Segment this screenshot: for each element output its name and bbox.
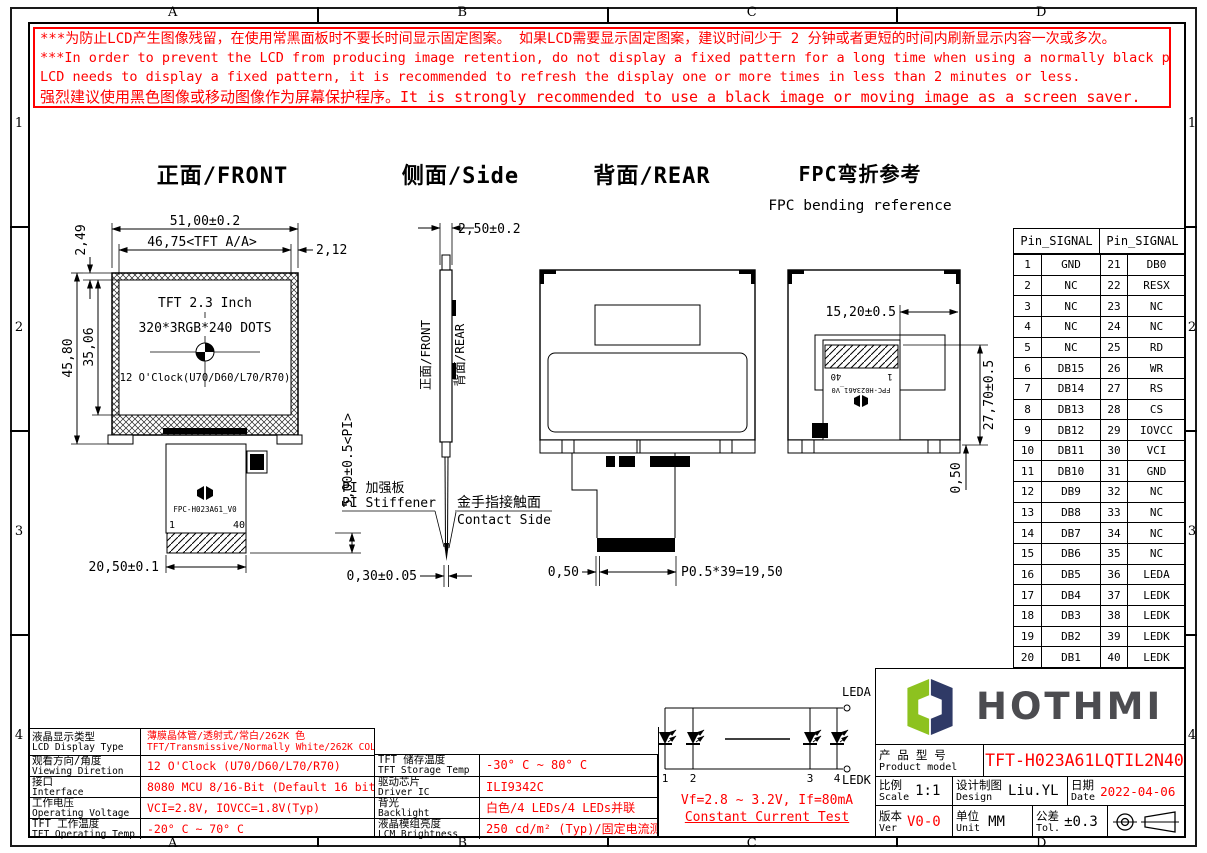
bend-gold-fingers <box>825 345 898 368</box>
fpc-view-subtitle: FPC bending reference <box>755 198 965 214</box>
front-fpc-pin1: 1 <box>169 520 175 531</box>
pin-number: 16 <box>1014 564 1041 585</box>
spec-label-cn: 驱动芯片 <box>378 777 479 788</box>
spec-label-en: Interface <box>32 788 140 798</box>
pin-signal: NC <box>1041 337 1100 358</box>
pin-number: 40 <box>1100 646 1127 667</box>
spec-value: 薄膜晶体管/透射式/常白/262K 色TFT/Transmissive/Norm… <box>141 729 374 755</box>
spec-label-en: Operating Voltage <box>32 809 140 819</box>
spec-value-line: -30° C ~ 80° C <box>486 759 657 772</box>
warning-line: ***In order to prevent the LCD from prod… <box>40 49 1164 68</box>
pin-number: 9 <box>1014 419 1041 440</box>
front-panel-size-label: TFT 2.3 Inch <box>158 296 252 311</box>
pin-number: 35 <box>1100 543 1127 564</box>
pin-number: 17 <box>1014 584 1041 605</box>
frame-zone-letter-bottom: C <box>742 836 762 851</box>
spec-value-line: ILI9342C <box>486 781 657 794</box>
pin-number: 8 <box>1014 399 1041 420</box>
frame-zone-number-left: 3 <box>11 524 27 539</box>
date-value: 2022-04-06 <box>1100 784 1175 799</box>
zone-tick <box>607 7 609 22</box>
hothmi-logo-icon <box>898 679 962 735</box>
pin-signal: WR <box>1127 357 1185 378</box>
zone-tick <box>1186 634 1197 636</box>
bend-pin40-label: 40 <box>831 371 842 381</box>
rear-dim-pitch: P0.5*39=19,50 <box>681 565 783 580</box>
side-profile-body <box>440 270 452 442</box>
side-component-bump <box>452 300 456 316</box>
pin-number: 10 <box>1014 440 1041 461</box>
scale-label-en: Scale <box>879 792 909 803</box>
pin-number: 13 <box>1014 502 1041 523</box>
spec-row: 工作电压Operating VoltageVCI=2.8V, IOVCC=1.8… <box>29 797 374 818</box>
pin-signal: CS <box>1127 399 1185 420</box>
spec-label-en: Driver IC <box>378 788 479 798</box>
pin-number: 33 <box>1100 502 1127 523</box>
pin-signal: DB13 <box>1041 399 1100 420</box>
pin-number: 1 <box>1014 254 1041 275</box>
pin-signal: DB3 <box>1041 605 1100 626</box>
frame-zone-letter-top: B <box>452 5 472 20</box>
pin-number: 2 <box>1014 275 1041 296</box>
front-fpc-part-label: FPC-H023A61_V0 <box>173 505 237 514</box>
pin-signal: LEDK <box>1127 646 1185 667</box>
pin-signal: IOVCC <box>1127 419 1185 440</box>
zone-tick <box>896 838 898 847</box>
spec-label: 工作电压Operating Voltage <box>29 798 141 818</box>
spec-value-line: 薄膜晶体管/透射式/常白/262K 色 <box>147 731 374 742</box>
warning-line: 强烈建议使用黑色图像或移动图像作为屏幕保护程序。It is strongly r… <box>40 87 1164 108</box>
date-label-en: Date <box>1071 792 1095 803</box>
spec-row: TFT 储存温度TFT Storage Temp-30° C ~ 80° C <box>375 755 657 776</box>
product-model-label-cn: 产 品 型 号 <box>879 749 957 762</box>
pin-number: 12 <box>1014 481 1041 502</box>
spec-value-line: VCI=2.8V, IOVCC=1.8V(Typ) <box>147 802 374 815</box>
frame-zone-number-right: 3 <box>1186 524 1198 539</box>
rear-fpc-component <box>619 456 635 467</box>
front-dim-top-margin: 2,49 <box>74 224 89 255</box>
pin-number: 32 <box>1100 481 1127 502</box>
pin-signal: RS <box>1127 378 1185 399</box>
ver-label-cn: 版本 <box>879 810 902 823</box>
spec-value: ILI9342C <box>480 777 657 797</box>
warning-line: ***为防止LCD产生图像残留，在使用常黑面板时不要长时间显示固定图案。 如果L… <box>40 30 1164 49</box>
spec-label: TFT 工作温度TFT Operating Temp <box>29 819 141 839</box>
spec-row: 接口Interface8080 MCU 8/16-Bit (Default 16… <box>29 776 374 797</box>
pin-signal: DB15 <box>1041 357 1100 378</box>
unit-label-en: Unit <box>956 823 980 834</box>
frame-zone-letter-top: C <box>742 5 762 20</box>
pin-signal: LEDK <box>1127 626 1185 647</box>
spec-row: 背光Backlight白色/4 LEDs/4 LEDs并联 <box>375 797 657 818</box>
spec-value-line: 12 O'Clock (U70/D60/L70/R70) <box>147 760 374 773</box>
front-dim-active-width: 46,75<TFT A/A> <box>147 235 257 250</box>
bend-dim-gap: 0,50 <box>949 462 964 493</box>
pin-table-header-left: Pin_SIGNAL <box>1014 229 1100 253</box>
spec-value-line: -20° C ~ 70° C <box>147 823 374 836</box>
spec-label-en: Viewing Diretion <box>32 767 140 777</box>
side-dim-thickness: 2,50±0.2 <box>458 222 521 237</box>
pin-number: 38 <box>1100 605 1127 626</box>
pin-signal: DB5 <box>1041 564 1100 585</box>
spec-value-line: 白色/4 LEDs/4 LEDs并联 <box>486 802 657 815</box>
spec-value: -20° C ~ 70° C <box>141 819 374 839</box>
pin-number: 4 <box>1014 316 1041 337</box>
zone-tick <box>1186 226 1197 228</box>
spec-label-cn: TFT 工作温度 <box>32 819 140 830</box>
pin-number: 14 <box>1014 522 1041 543</box>
spec-value-line: 250 cd/m² (Typ)/固定电流测试 <box>486 823 657 836</box>
pin-signal: DB0 <box>1127 254 1185 275</box>
pin-number: 21 <box>1100 254 1127 275</box>
pin-number: 25 <box>1100 337 1127 358</box>
warning-line: LCD needs to display a fixed pattern, it… <box>40 68 1164 87</box>
spec-row: 液晶模组亮度LCM Brightness250 cd/m² (Typ)/固定电流… <box>375 818 657 839</box>
pin-number: 31 <box>1100 460 1127 481</box>
pin-number: 20 <box>1014 646 1041 667</box>
bend-fpc-part-label: FPC-H023A61_V0 <box>831 386 890 394</box>
pin-signal: DB10 <box>1041 460 1100 481</box>
pin-number: 29 <box>1100 419 1127 440</box>
rear-view-title: 背面/REAR <box>572 158 732 190</box>
spec-row: 驱动芯片Driver ICILI9342C <box>375 776 657 797</box>
pin-number: 5 <box>1014 337 1041 358</box>
pin-signal: DB1 <box>1041 646 1100 667</box>
pin-signal: DB2 <box>1041 626 1100 647</box>
spec-value-line: 8080 MCU 8/16-Bit (Default 16 bit) <box>147 781 374 794</box>
pin-number: 37 <box>1100 584 1127 605</box>
leda-terminal <box>844 705 850 711</box>
rear-gold-fingers <box>597 538 675 552</box>
front-view-drawing: TFT 2.3 Inch 320*3RGB*240 DOTS 12 O'Cloc… <box>45 215 380 590</box>
zone-tick <box>896 7 898 22</box>
frame-zone-number-left: 1 <box>11 116 27 131</box>
spec-row: TFT 工作温度TFT Operating Temp-20° C ~ 70° C <box>29 818 374 839</box>
datasheet-drawing-page: AABBCCDD11223344 ***为防止LCD产生图像残留，在使用常黑面板… <box>0 0 1207 853</box>
spec-label: 观看方向/角度Viewing Diretion <box>29 756 141 776</box>
pin-number: 34 <box>1100 522 1127 543</box>
pin-number: 23 <box>1100 295 1127 316</box>
rear-fpc-component <box>606 456 615 467</box>
bend-pin1-label: 1 <box>887 371 892 381</box>
bend-dim-width: 15,20±0.5 <box>826 305 896 320</box>
unit-label-cn: 单位 <box>956 810 980 823</box>
pin-signal: GND <box>1041 254 1100 275</box>
zone-tick <box>1186 430 1197 432</box>
pin-signal: GND <box>1127 460 1185 481</box>
pin-signal: LEDK <box>1127 584 1185 605</box>
pin-signal: DB9 <box>1041 481 1100 502</box>
pin-signal: NC <box>1127 502 1185 523</box>
spec-label: 液晶模组亮度LCM Brightness <box>375 819 480 839</box>
logo-cell: HOTHMI <box>876 669 1185 745</box>
rear-fpc-left-edge <box>572 453 597 538</box>
pin-table-header: Pin_SIGNAL Pin_SIGNAL <box>1014 229 1185 254</box>
spec-label: 背光Backlight <box>375 798 480 818</box>
pin-signal: RD <box>1127 337 1185 358</box>
spec-label-cn: 背光 <box>378 798 479 809</box>
spec-value: -30° C ~ 80° C <box>480 755 657 776</box>
rear-bottom-strip <box>540 440 755 453</box>
front-bezel-slot <box>163 428 247 434</box>
spec-label-en: Backlight <box>378 809 479 819</box>
constant-current-test-text: Constant Current Test <box>659 810 875 825</box>
logo-wordmark: HOTHMI <box>976 685 1163 728</box>
pin-number: 7 <box>1014 378 1041 399</box>
spec-label-cn: 观看方向/角度 <box>32 756 140 767</box>
rear-module-outline <box>540 270 755 440</box>
tol-label-cn: 公差 <box>1036 810 1060 823</box>
front-fpc-connector <box>250 454 264 470</box>
contact-side-label-cn: 金手指接触面 <box>457 494 541 511</box>
front-dim-fpc-width: 20,50±0.1 <box>89 560 159 575</box>
pin-number: 30 <box>1100 440 1127 461</box>
pin-table-rows: 1GND21DB02NC22RESX3NC23NC4NC24NC5NC25RD6… <box>1014 254 1185 667</box>
pin-signal: DB6 <box>1041 543 1100 564</box>
pin-table-header-right: Pin_SIGNAL <box>1100 229 1185 253</box>
pin-signal: RESX <box>1127 275 1185 296</box>
spec-label-en: TFT Operating Temp <box>32 830 140 840</box>
side-view-title: 侧面/Side <box>383 158 538 190</box>
design-label-cn: 设计制图 <box>956 779 1002 792</box>
frame-zone-letter-top: D <box>1031 5 1051 20</box>
rear-label-area <box>595 305 700 345</box>
side-bottom-cap <box>442 442 450 457</box>
title-block: HOTHMI 产 品 型 号 Product model TFT-H023A61… <box>875 668 1186 838</box>
spec-label: TFT 储存温度TFT Storage Temp <box>375 755 480 776</box>
pin-signal: DB11 <box>1041 440 1100 461</box>
pin-signal: NC <box>1041 295 1100 316</box>
pin-number: 24 <box>1100 316 1127 337</box>
product-model-label-en: Product model <box>879 762 957 773</box>
pin-number: 18 <box>1014 605 1041 626</box>
pin-signal: NC <box>1041 316 1100 337</box>
zone-tick <box>10 226 28 228</box>
spec-value: 8080 MCU 8/16-Bit (Default 16 bit) <box>141 777 374 797</box>
unit-value: MM <box>988 814 1005 830</box>
pin-signal: DB12 <box>1041 419 1100 440</box>
zone-tick <box>10 634 28 636</box>
rear-view-drawing: 0,50 P0.5*39=19,50 <box>530 250 815 590</box>
pi-stiffener-label-en: PI Stiffener <box>342 496 436 511</box>
pin-signal: DB7 <box>1041 522 1100 543</box>
pin-number: 26 <box>1100 357 1127 378</box>
front-dim-width: 51,00±0.2 <box>170 214 240 229</box>
ver-value: V0-0 <box>907 814 941 830</box>
pin-signal: NC <box>1127 295 1185 316</box>
front-panel-clock-label: 12 O'Clock(U70/D60/L70/R70) <box>120 372 291 384</box>
pin-signal: NC <box>1127 543 1185 564</box>
ver-label-en: Ver <box>879 823 902 834</box>
vf-spec-text: Vf=2.8 ~ 3.2V, If=80mA <box>659 793 875 808</box>
pin-number: 15 <box>1014 543 1041 564</box>
bend-dim-height: 27,70±0.5 <box>982 360 997 430</box>
scale-design-date-row: 比例 Scale 1:1 设计制图 Design Liu.YL 日期 Date … <box>876 777 1185 806</box>
leda-label: LEDA <box>842 685 872 699</box>
warning-box: ***为防止LCD产生图像残留，在使用常黑面板时不要长时间显示固定图案。 如果L… <box>33 27 1171 108</box>
zone-tick <box>607 838 609 847</box>
spec-label-en: LCM Brightness <box>378 830 479 840</box>
pin-number: 11 <box>1014 460 1041 481</box>
pin-signal: NC <box>1127 316 1185 337</box>
pin-signal: LEDK <box>1127 605 1185 626</box>
spec-value-line: TFT/Transmissive/Normally White/262K COL… <box>147 742 374 753</box>
pin-signal: VCI <box>1127 440 1185 461</box>
pin-number: 19 <box>1014 626 1041 647</box>
spec-value: VCI=2.8V, IOVCC=1.8V(Typ) <box>141 798 374 818</box>
ver-unit-tol-row: 版本 Ver V0-0 单位 Unit MM 公差 Tol. ±0.3 <box>876 806 1185 837</box>
front-dim-height: 45,80 <box>61 338 76 377</box>
frame-zone-number-right: 4 <box>1186 728 1198 743</box>
spec-label: 液晶显示类型LCD Display Type <box>29 729 141 755</box>
spec-value: 白色/4 LEDs/4 LEDs并联 <box>480 798 657 818</box>
fpc-bending-drawing: 40 1 FPC-H023A61_V0 15,20±0.5 27,70±0.5 … <box>780 250 1010 500</box>
front-view-title: 正面/FRONT <box>115 158 330 190</box>
spec-label: 接口Interface <box>29 777 141 797</box>
scale-value: 1:1 <box>915 783 940 799</box>
product-model-value: TFT-H023A61LQTIL2N40 <box>985 751 1184 770</box>
pin-number: 6 <box>1014 357 1041 378</box>
scale-label-cn: 比例 <box>879 779 909 792</box>
zone-tick <box>10 430 28 432</box>
fpc-view-title: FPC弯折参考 <box>765 158 955 187</box>
lcd-spec-table-left: 液晶显示类型LCD Display Type薄膜晶体管/透射式/常白/262K … <box>28 728 375 838</box>
pin-signal: DB8 <box>1041 502 1100 523</box>
product-model-row: 产 品 型 号 Product model TFT-H023A61LQTIL2N… <box>876 745 1185 777</box>
spec-label-cn: 液晶模组亮度 <box>378 819 479 830</box>
frame-zone-letter-top: A <box>163 5 183 20</box>
projection-symbol-icon <box>1111 808 1183 836</box>
side-top-cap <box>442 255 450 270</box>
front-fpc-pin40: 40 <box>233 520 245 531</box>
rear-fpc-component <box>650 456 690 467</box>
spec-value: 12 O'Clock (U70/D60/L70/R70) <box>141 756 374 776</box>
design-value: Liu.YL <box>1008 783 1059 799</box>
side-rear-face-label: 背面/REAR <box>452 323 467 386</box>
pin-number: 36 <box>1100 564 1127 585</box>
spec-label-en: TFT Storage Temp <box>378 766 479 776</box>
lcd-spec-table-middle: TFT 储存温度TFT Storage Temp-30° C ~ 80° C驱动… <box>375 754 658 838</box>
side-front-face-label: 正面/FRONT <box>418 319 433 390</box>
pin-signal: NC <box>1127 522 1185 543</box>
frame-zone-number-left: 4 <box>11 728 27 743</box>
zone-tick <box>317 7 319 22</box>
pin-number: 27 <box>1100 378 1127 399</box>
design-label-en: Design <box>956 792 1002 803</box>
pin-number: 28 <box>1100 399 1127 420</box>
tol-value: ±0.3 <box>1064 814 1098 830</box>
spec-label: 驱动芯片Driver IC <box>375 777 480 797</box>
side-fpc-tip <box>444 543 449 561</box>
pin-signal: DB14 <box>1041 378 1100 399</box>
front-panel-dots-label: 320*3RGB*240 DOTS <box>138 321 271 336</box>
front-tab-right <box>277 435 302 444</box>
pin-signal-table: Pin_SIGNAL Pin_SIGNAL 1GND21DB02NC22RESX… <box>1013 228 1186 668</box>
front-gold-fingers <box>167 533 246 553</box>
side-dim-fpc-thickness: 0,30±0.05 <box>347 569 417 584</box>
pin-number: 3 <box>1014 295 1041 316</box>
spec-label-cn: 液晶显示类型 <box>32 732 140 743</box>
pin-number: 39 <box>1100 626 1127 647</box>
backlight-test-cell: Vf=2.8 ~ 3.2V, If=80mA Constant Current … <box>658 727 875 838</box>
spec-value: 250 cd/m² (Typ)/固定电流测试 <box>480 819 657 839</box>
frame-zone-number-right: 1 <box>1186 116 1198 131</box>
frame-zone-number-left: 2 <box>11 320 27 335</box>
pin-signal: DB4 <box>1041 584 1100 605</box>
front-dim-active-height: 35,06 <box>82 327 97 366</box>
frame-zone-letter-bottom: D <box>1031 836 1051 851</box>
spec-row: 观看方向/角度Viewing Diretion12 O'Clock (U70/D… <box>29 755 374 776</box>
pi-stiffener-label-cn: PI 加强板 <box>342 481 404 496</box>
spec-label-en: LCD Display Type <box>32 743 140 753</box>
spec-label-cn: 接口 <box>32 777 140 788</box>
frame-zone-number-right: 2 <box>1186 320 1198 335</box>
bend-connector <box>812 423 828 438</box>
front-tab-left <box>108 435 133 444</box>
pin-number: 22 <box>1100 275 1127 296</box>
pin-signal: NC <box>1127 481 1185 502</box>
pin-signal: NC <box>1041 275 1100 296</box>
rear-dim-pin-offset: 0,50 <box>548 565 579 580</box>
tol-label-en: Tol. <box>1036 823 1060 834</box>
date-label-cn: 日期 <box>1071 779 1095 792</box>
spec-label-cn: 工作电压 <box>32 798 140 809</box>
zone-tick <box>317 838 319 847</box>
pin-signal: LEDA <box>1127 564 1185 585</box>
spec-row: 液晶显示类型LCD Display Type薄膜晶体管/透射式/常白/262K … <box>29 729 374 755</box>
